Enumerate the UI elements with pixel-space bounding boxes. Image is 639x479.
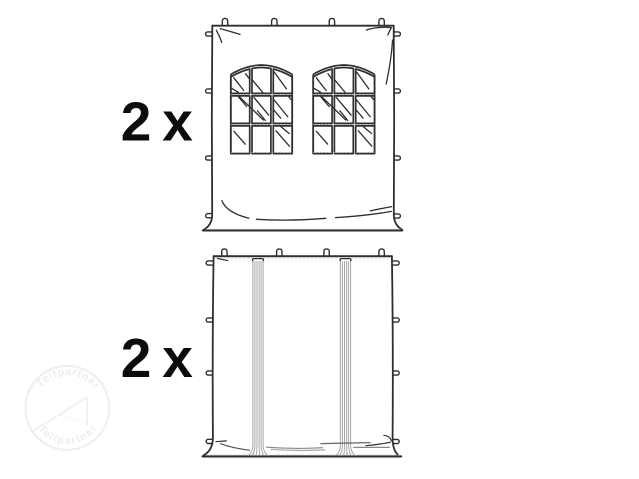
svg-text:x: x [162, 91, 193, 153]
svg-text:2: 2 [121, 91, 152, 153]
svg-text:x: x [162, 327, 193, 389]
svg-text:2: 2 [121, 327, 152, 389]
